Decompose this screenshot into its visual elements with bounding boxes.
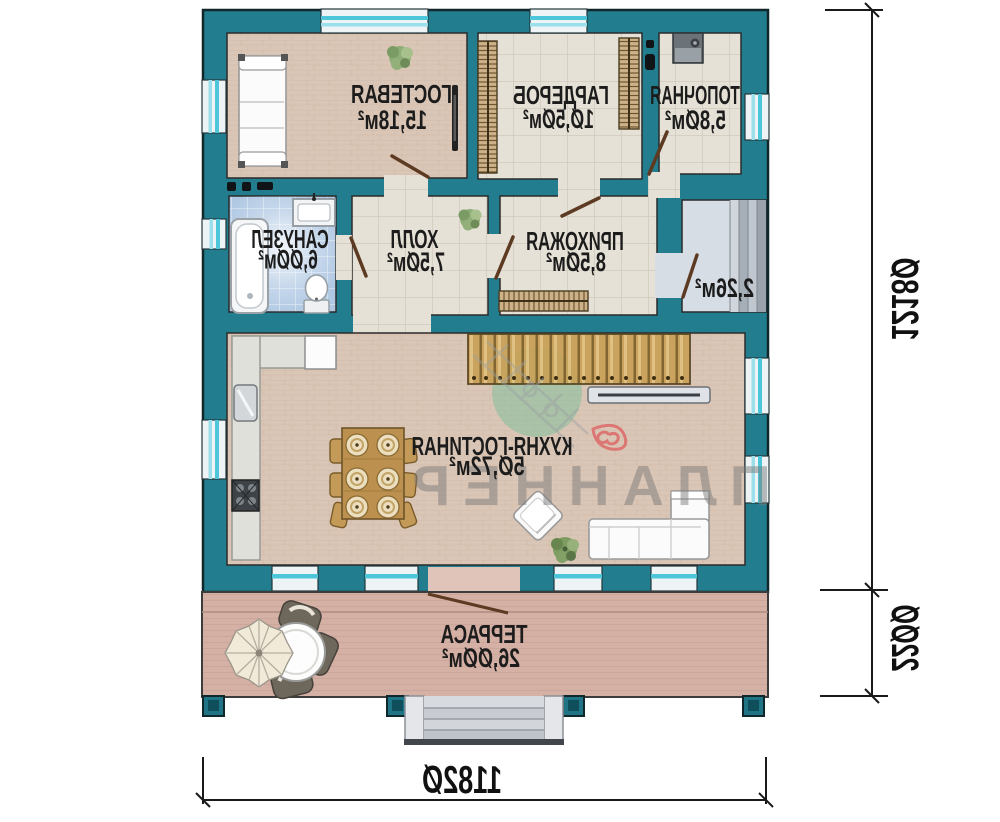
svg-text:15,18м²: 15,18м² bbox=[358, 105, 427, 135]
svg-text:26,ØØм²: 26,ØØм² bbox=[442, 643, 520, 673]
svg-text:1182Ø: 1182Ø bbox=[422, 759, 502, 802]
svg-text:6,ØØм²: 6,ØØм² bbox=[258, 245, 317, 275]
svg-text:2,26м²: 2,26м² bbox=[695, 273, 754, 303]
svg-text:5Ø,72м²: 5Ø,72м² bbox=[449, 451, 525, 480]
svg-text:1Ø,5Øм²: 1Ø,5Øм² bbox=[523, 104, 594, 133]
svg-text:7,5Øм²: 7,5Øм² bbox=[387, 248, 445, 277]
svg-text:5,8Øм²: 5,8Øм² bbox=[665, 105, 726, 135]
svg-text:22ØØ: 22ØØ bbox=[884, 605, 926, 672]
svg-text:8,5Øм²: 8,5Øм² bbox=[546, 247, 606, 277]
svg-text:1218Ø: 1218Ø bbox=[883, 258, 925, 341]
